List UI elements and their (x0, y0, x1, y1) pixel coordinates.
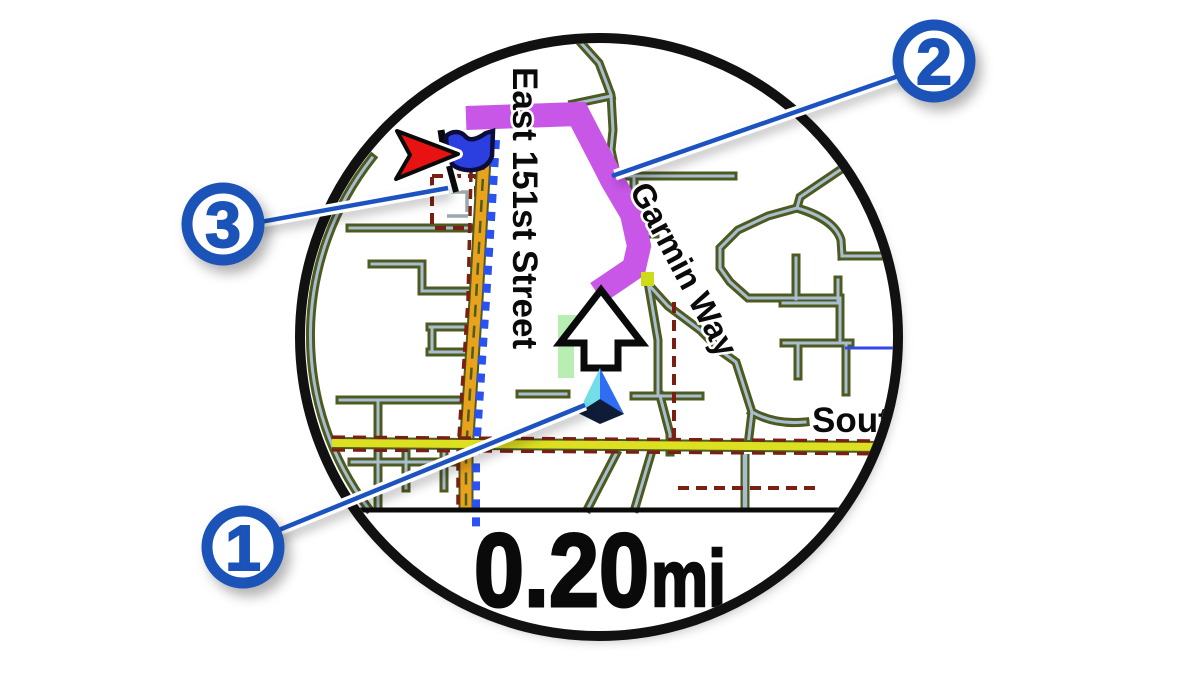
svg-text:0.20: 0.20 (474, 513, 649, 629)
svg-text:2: 2 (916, 26, 952, 98)
svg-text:East 151st Street: East 151st Street (505, 67, 544, 349)
svg-text:3: 3 (205, 189, 241, 261)
svg-text:1: 1 (225, 512, 261, 584)
